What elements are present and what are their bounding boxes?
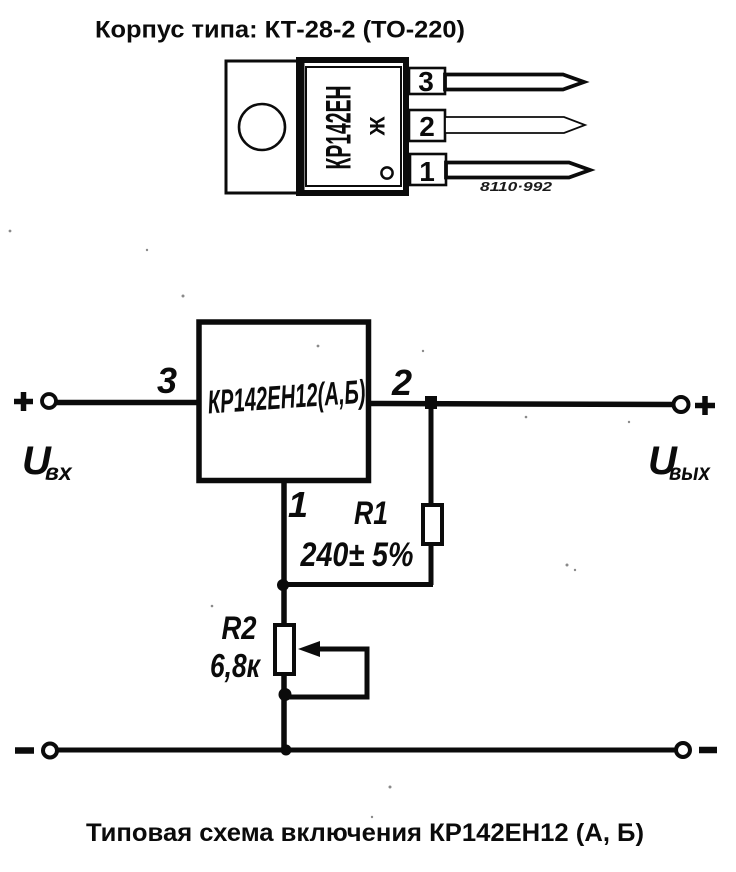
svg-text:1: 1 — [288, 484, 308, 525]
svg-text:3: 3 — [157, 360, 177, 401]
svg-text:1: 1 — [419, 156, 435, 187]
svg-text:Типовая схема включения КР142Е: Типовая схема включения КР142ЕН12 (А, Б) — [86, 819, 644, 847]
svg-text:3: 3 — [418, 66, 434, 97]
svg-text:вх: вх — [45, 459, 73, 485]
svg-text:Корпус типа: КТ-28-2 (ТО-220): Корпус типа: КТ-28-2 (ТО-220) — [95, 17, 465, 44]
svg-text:КР142ЕН: КР142ЕН — [320, 86, 359, 170]
svg-text:вых: вых — [669, 459, 711, 485]
svg-text:6,8к: 6,8к — [210, 647, 262, 684]
svg-text:2: 2 — [391, 362, 412, 403]
svg-text:240± 5%: 240± 5% — [300, 536, 414, 574]
svg-text:R1: R1 — [354, 495, 388, 531]
svg-text:Ж: Ж — [367, 115, 390, 136]
svg-text:2: 2 — [419, 111, 435, 142]
svg-text:R2: R2 — [222, 610, 257, 646]
svg-text:8110·992: 8110·992 — [480, 179, 553, 194]
